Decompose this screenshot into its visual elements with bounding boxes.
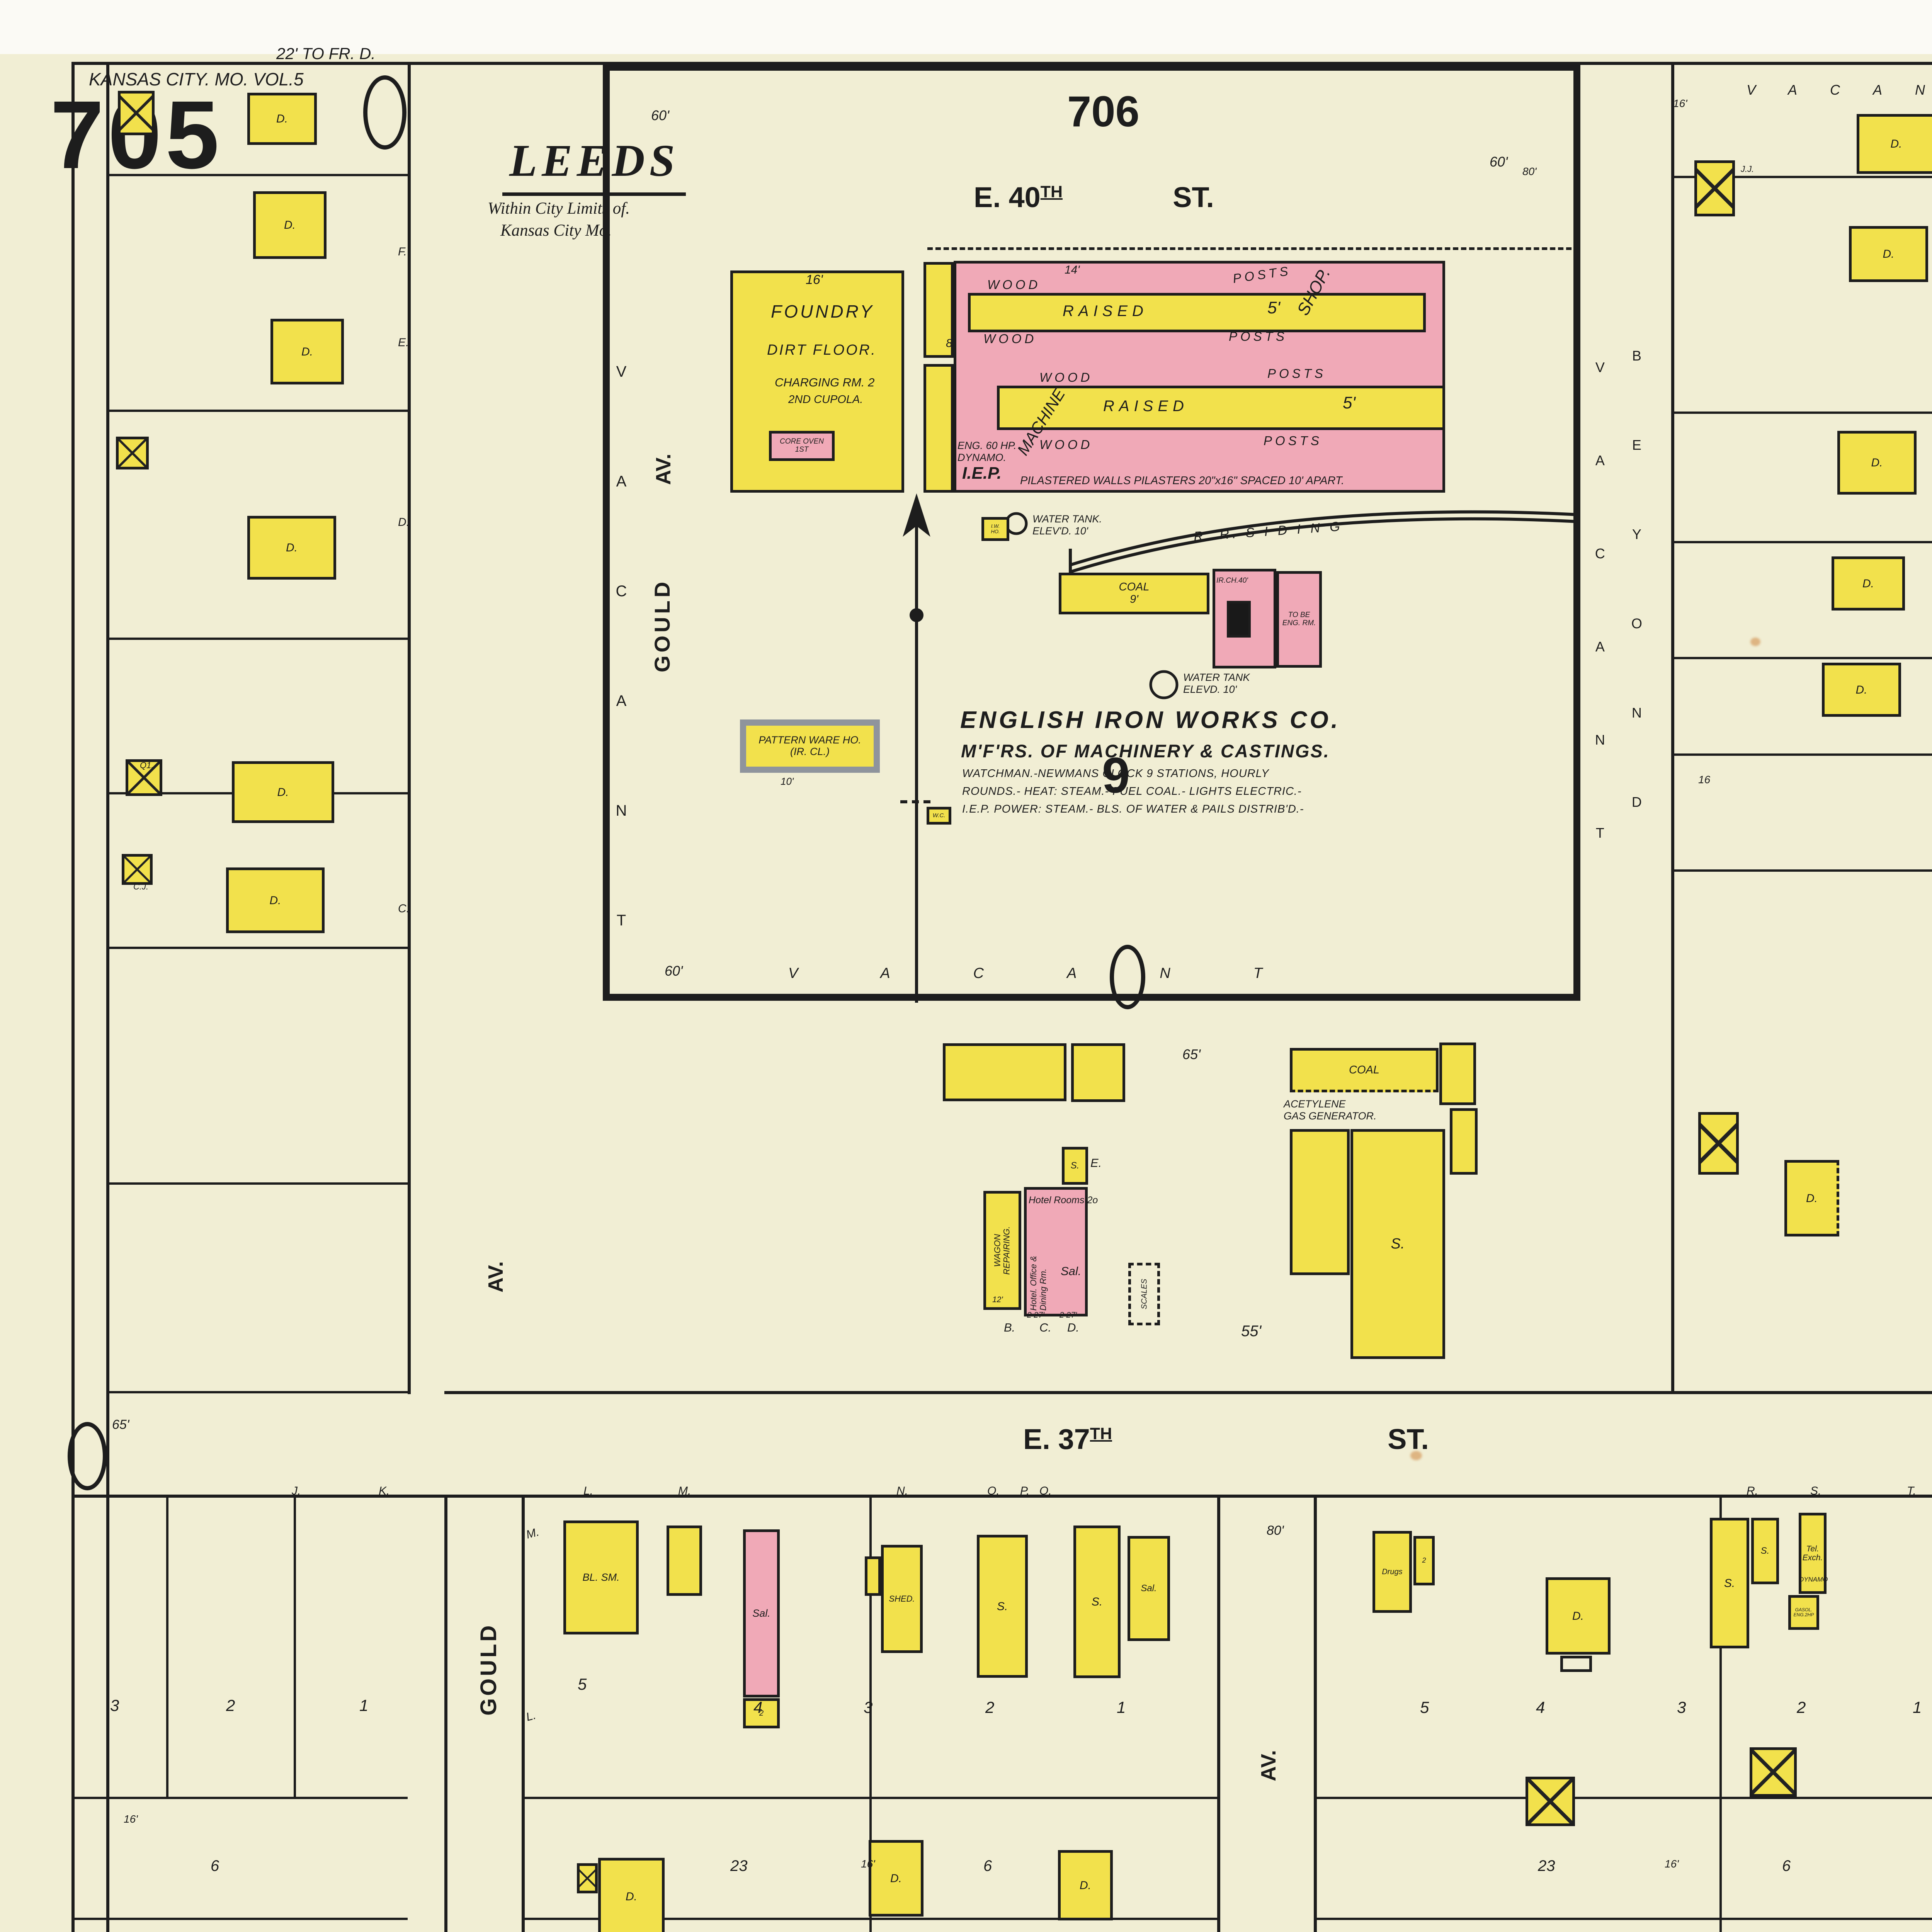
map-label: Hotel. Office & Dining Rm. <box>1029 1256 1048 1311</box>
map-label: 1 <box>1913 1698 1922 1717</box>
map-label: 706 <box>1067 87 1139 137</box>
map-label: WATER TANK ELEVD. 10' <box>1183 672 1250 696</box>
map-label: Q. <box>1039 1485 1052 1498</box>
building <box>116 437 149 469</box>
map-line <box>106 638 408 640</box>
map-line <box>106 62 109 1932</box>
drug-store: Drugs <box>1372 1531 1412 1613</box>
map-label: 6 <box>1782 1857 1791 1875</box>
building-label: D. <box>890 1872 902 1885</box>
map-line <box>603 64 1580 71</box>
map-label: VACANT <box>1592 359 1608 918</box>
map-label: AV. <box>651 454 675 485</box>
map-line <box>71 1797 408 1799</box>
building <box>577 1863 598 1893</box>
building: D. <box>1058 1850 1113 1920</box>
building: D. <box>1546 1577 1611 1655</box>
map-subtitle-2: Kansas City Mo. <box>500 221 612 240</box>
map-line <box>106 410 408 412</box>
map-label: 60' <box>665 963 683 979</box>
building <box>1560 1656 1592 1672</box>
map-label: 2 <box>226 1696 235 1715</box>
map-label: POSTS <box>1264 434 1322 448</box>
street-e-40th: E. 40TH ST. <box>974 181 1214 214</box>
map-label: D. <box>398 516 410 529</box>
factory-subtitle: M'F'RS. OF MACHINERY & CASTINGS. <box>961 740 1330 762</box>
map-label: J.J. <box>1741 164 1754 174</box>
building-label: D. <box>1862 577 1874 590</box>
map-label: M. <box>525 1526 541 1542</box>
sheet-marker-oval <box>363 75 406 150</box>
map-label: 16' <box>1665 1858 1679 1870</box>
map-label: 65' <box>112 1417 129 1432</box>
map-label: 2 <box>1797 1698 1806 1717</box>
map-label: IR.CH.40' <box>1216 577 1248 585</box>
building-label: Sal. <box>1141 1583 1156 1594</box>
building-label: D. <box>1856 684 1867 696</box>
map-label: 3 <box>864 1698 872 1717</box>
map-label: 3 <box>1677 1698 1686 1717</box>
map-label: 5' <box>1267 298 1280 318</box>
map-label: 5 <box>1420 1698 1429 1717</box>
map-label: E. <box>398 336 409 350</box>
map-label: N. <box>896 1485 908 1498</box>
map-label: R. <box>1747 1485 1758 1498</box>
street-e-40th-suffix: ST. <box>1173 181 1214 214</box>
map-line <box>1671 541 1932 543</box>
factory-note-2: ROUNDS.- HEAT: STEAM.- FUEL COAL.- LIGHT… <box>962 785 1302 798</box>
building <box>943 1043 1066 1101</box>
coal-yard-label: COAL <box>1349 1064 1379 1077</box>
building-label: 2 <box>1422 1557 1426 1565</box>
building-label: D. <box>276 112 288 125</box>
building-label: D. <box>1806 1192 1818 1205</box>
map-label: 10' <box>781 776 794 787</box>
building-label: D. <box>284 219 296 231</box>
map-label: POSTS <box>1267 366 1326 381</box>
building: D. <box>247 516 336 580</box>
map-label: 2 27' <box>1027 1311 1044 1320</box>
map-label: 9 <box>1102 747 1130 804</box>
map-label: 23 <box>730 1857 748 1875</box>
map-label: 60' <box>1490 154 1508 170</box>
blacksmith-label: BL. SM. <box>582 1572 619 1583</box>
map-label: GOULD <box>476 1623 502 1716</box>
building-label: D. <box>270 894 281 907</box>
map-label: O. <box>987 1485 1000 1498</box>
map-label: RAISED <box>1063 302 1148 320</box>
map-label: J. <box>292 1485 301 1498</box>
map-label: 2 27' <box>1060 1311 1077 1320</box>
map-label: GOULD <box>650 579 675 672</box>
map-label: D. <box>1067 1321 1079 1335</box>
coal-shed-label: COAL 9' <box>1119 581 1150 606</box>
wagon-repairing: WAGON REPAIRING. <box>983 1191 1021 1310</box>
building-label: D. <box>1871 456 1883 469</box>
map-label: WOOD <box>983 332 1037 346</box>
map-label: WATER TANK. ELEV'D. 10' <box>1032 513 1102 537</box>
north-arrow <box>900 498 933 1003</box>
building: Sal. <box>1128 1536 1170 1641</box>
map-label: PILASTERED WALLS PILASTERS 20"x16" SPACE… <box>1020 474 1344 487</box>
map-label: E. <box>1090 1156 1102 1170</box>
map-line <box>1671 412 1932 414</box>
map-label: VACANT <box>612 363 630 1022</box>
sheet-marker-oval <box>1110 945 1145 1009</box>
map-line <box>1671 753 1932 756</box>
map-label: 6 <box>983 1857 992 1875</box>
map-line <box>106 1182 408 1185</box>
map-label: 6 <box>211 1857 219 1875</box>
wood-pattern-shop <box>923 364 954 493</box>
building: S. <box>1073 1526 1121 1678</box>
map-label: 1 <box>1117 1698 1126 1717</box>
blacksmith: BL. SM. <box>563 1520 639 1634</box>
map-line <box>294 1495 296 1797</box>
coal-shed: COAL 9' <box>1059 573 1209 614</box>
building: S. <box>1751 1518 1779 1584</box>
sheet-marker-oval <box>68 1422 107 1490</box>
building: D. <box>253 191 327 259</box>
building: S. <box>977 1535 1028 1678</box>
map-line <box>166 1495 168 1797</box>
map-line <box>1671 62 1674 1394</box>
gasoline-engine: GASOL. ENG.2HP <box>1788 1595 1819 1630</box>
core-oven: CORE OVEN 1ST <box>769 431 835 461</box>
coal-yard: COAL <box>1290 1048 1439 1092</box>
building: 2 <box>1413 1536 1435 1585</box>
map-line <box>603 64 610 1001</box>
map-label: 3 <box>110 1696 119 1715</box>
building: D. <box>1857 114 1932 174</box>
building-label: S. <box>1724 1577 1735 1590</box>
street-e-37th-name: E. 37TH <box>1023 1423 1112 1456</box>
map-label: 16' <box>861 1858 875 1870</box>
scales: SCALES <box>1128 1263 1160 1325</box>
building: D. <box>1837 431 1917 495</box>
map-label: K. <box>379 1485 389 1498</box>
map-label: M. <box>678 1485 691 1498</box>
building: D. <box>247 93 317 145</box>
map-label: AV. <box>484 1261 508 1293</box>
map-label: Sal. <box>1061 1264 1081 1278</box>
map-label: 1 <box>359 1696 368 1715</box>
title-underline <box>502 192 686 196</box>
map-line <box>71 1918 408 1920</box>
map-label: L. <box>583 1485 593 1498</box>
map-label: 12' <box>992 1295 1003 1304</box>
store-label: S. <box>1391 1236 1405 1252</box>
building-label: D. <box>1080 1879 1091 1892</box>
map-line <box>603 994 1580 1001</box>
map-label: 55' <box>1241 1322 1261 1340</box>
map-label: Q1. <box>140 760 153 770</box>
map-label: I.E.P. <box>962 464 1002 483</box>
map-line <box>106 947 408 949</box>
building: D. <box>869 1840 923 1917</box>
map-label: CHARGING RM. 2 <box>775 376 874 389</box>
telephone-exchange-label: Tel. Exch. <box>1803 1544 1823 1562</box>
map-label: 5 <box>578 1675 587 1694</box>
map-line <box>71 1495 1932 1498</box>
map-label: B. <box>1004 1321 1015 1335</box>
map-line <box>1314 1495 1317 1932</box>
map-line <box>106 174 408 176</box>
future-engine-room: TO BE ENG. RM. <box>1276 571 1322 668</box>
frame-distance-note: 22' TO FR. D. <box>276 44 376 63</box>
pattern-ware-house-label: PATTERN WARE HO. (IR. CL.) <box>759 735 861 757</box>
building-label: D. <box>1891 138 1902 150</box>
core-oven-label: CORE OVEN 1ST <box>780 438 824 454</box>
wagon-repairing-label: WAGON REPAIRING. <box>993 1226 1012 1275</box>
iron-ware-hut-label: I.W. HO. <box>991 524 1000 535</box>
map-label: 8 <box>946 337 952 350</box>
building-label: D. <box>1883 248 1895 260</box>
map-label: WOOD <box>1039 370 1093 385</box>
map-label: F. <box>398 245 407 259</box>
map-label: ENG. 60 HP. DYNAMO. <box>957 440 1017 464</box>
stain <box>1410 1451 1422 1460</box>
scales-label: SCALES <box>1140 1279 1148 1310</box>
building <box>1526 1777 1575 1826</box>
map-line <box>408 62 411 1394</box>
building: D. <box>1832 556 1905 611</box>
map-label: VACANT <box>788 965 1345 982</box>
map-label: AV. <box>1257 1750 1281 1781</box>
map-line <box>444 1495 447 1932</box>
map-label: C. <box>398 902 410 916</box>
map-line <box>106 1391 408 1393</box>
map-label: WOOD <box>1039 437 1093 452</box>
stack <box>1227 601 1251 638</box>
street-e-37th-suffix: ST. <box>1388 1423 1429 1456</box>
water-closet: W.C. <box>927 807 951 825</box>
shed: SHED. <box>881 1545 923 1653</box>
raised-floor-1 <box>968 293 1426 332</box>
building: D. <box>232 761 334 823</box>
building <box>1698 1112 1739 1175</box>
building-label: D. <box>301 345 313 358</box>
building-label: D. <box>286 541 298 554</box>
iron-ware-hut: I.W. HO. <box>981 517 1009 541</box>
building <box>667 1526 702 1596</box>
map-label: S. <box>1810 1485 1821 1498</box>
map-label: L. <box>525 1709 537 1724</box>
map-label: VACANT <box>1747 82 1932 98</box>
building <box>1450 1108 1478 1175</box>
map-label: 5' <box>1343 393 1355 413</box>
map-label: Hotel Rooms 2o <box>1029 1195 1098 1206</box>
building: D. <box>270 319 344 384</box>
saloon-label: Sal. <box>752 1608 770 1619</box>
drug-store-label: Drugs <box>1382 1568 1402 1576</box>
building: D. <box>1822 663 1901 717</box>
map-label: 4 <box>1536 1698 1545 1717</box>
map-label: 60' <box>651 107 669 123</box>
building-label: D. <box>1572 1610 1584 1622</box>
building: S. <box>1062 1147 1088 1185</box>
gasoline-engine-label: GASOL. ENG.2HP <box>1794 1607 1814 1617</box>
building: S. <box>1710 1518 1749 1648</box>
map-label: 14' <box>1065 264 1080 277</box>
map-label: T. <box>1907 1485 1916 1498</box>
building-label: S. <box>1092 1595 1102 1608</box>
map-label: 2 <box>985 1698 994 1717</box>
map-label: 23 <box>1538 1857 1555 1875</box>
stain <box>1750 638 1760 646</box>
map-label: WOOD <box>987 277 1041 292</box>
building <box>1439 1043 1476 1105</box>
water-closet-label: W.C. <box>933 813 946 819</box>
building <box>122 854 153 885</box>
map-label: 16' <box>806 272 823 287</box>
map-line <box>1573 64 1580 1001</box>
street-e-37th: E. 37TH ST. <box>1023 1423 1429 1456</box>
map-label: RAISED <box>1103 397 1189 415</box>
map-label: 16' <box>1673 97 1687 110</box>
building <box>1290 1129 1350 1275</box>
building <box>1071 1043 1125 1102</box>
map-label: 16 <box>1698 774 1710 786</box>
map-line <box>1217 1495 1220 1932</box>
store: S. <box>1350 1129 1445 1359</box>
factory-name: ENGLISH IRON WORKS CO. <box>960 706 1340 734</box>
map-line <box>927 247 1580 250</box>
building-label: D. <box>626 1890 637 1903</box>
shed-label: SHED. <box>889 1594 915 1604</box>
map-line <box>1671 657 1932 659</box>
map-label: ACETYLENE GAS GENERATOR. <box>1284 1098 1377 1122</box>
building <box>865 1556 881 1596</box>
building: D. <box>226 867 325 933</box>
map-label: POSTS <box>1229 329 1287 344</box>
building-label: D. <box>277 786 289 799</box>
map-label: 16' <box>124 1813 138 1825</box>
map-label: C.J. <box>133 882 148 891</box>
building: D. <box>1849 226 1928 282</box>
map-label: DIRT FLOOR. <box>767 342 877 359</box>
map-label: 4 <box>753 1698 762 1717</box>
map-line <box>522 1495 525 1932</box>
map-label: 80' <box>1267 1523 1284 1538</box>
building: D. <box>598 1858 665 1932</box>
pattern-ware-house: PATTERN WARE HO. (IR. CL.) <box>740 719 880 773</box>
map-label: P. <box>1020 1485 1029 1498</box>
building-label: S. <box>1071 1161 1080 1171</box>
map-label: DYNAMO <box>1799 1576 1828 1583</box>
building <box>118 91 155 135</box>
building <box>1750 1747 1797 1797</box>
map-line <box>71 62 75 1932</box>
street-e-40th-name: E. 40TH <box>974 181 1063 214</box>
map-title: LEEDS <box>509 134 679 187</box>
map-label: FOUNDRY <box>771 301 874 322</box>
map-line <box>1671 869 1932 872</box>
railroad-label: R. R. S I D I N G <box>1193 519 1344 544</box>
map-label: BEYOND <box>1629 348 1645 883</box>
factory-note-3: I.E.P. POWER: STEAM.- BLS. OF WATER & PA… <box>962 803 1304 816</box>
sanborn-map-sheet: KANSAS CITY. MO. VOL.5 705 22' TO FR. D.… <box>0 0 1932 1932</box>
building-label: S. <box>997 1600 1008 1613</box>
map-label: C. <box>1039 1321 1051 1335</box>
building: D. <box>1784 1160 1839 1236</box>
map-label: 2ND CUPOLA. <box>788 393 863 406</box>
map-line <box>444 1391 1932 1394</box>
building-label: S. <box>1761 1546 1770 1556</box>
building <box>1694 160 1735 216</box>
map-line <box>1314 1797 1932 1799</box>
saloon: Sal. <box>743 1529 780 1697</box>
map-line <box>1314 1918 1932 1920</box>
map-label: 80' <box>1522 165 1537 178</box>
map-label: 65' <box>1182 1046 1201 1062</box>
future-engine-room-label: TO BE ENG. RM. <box>1282 611 1316 628</box>
